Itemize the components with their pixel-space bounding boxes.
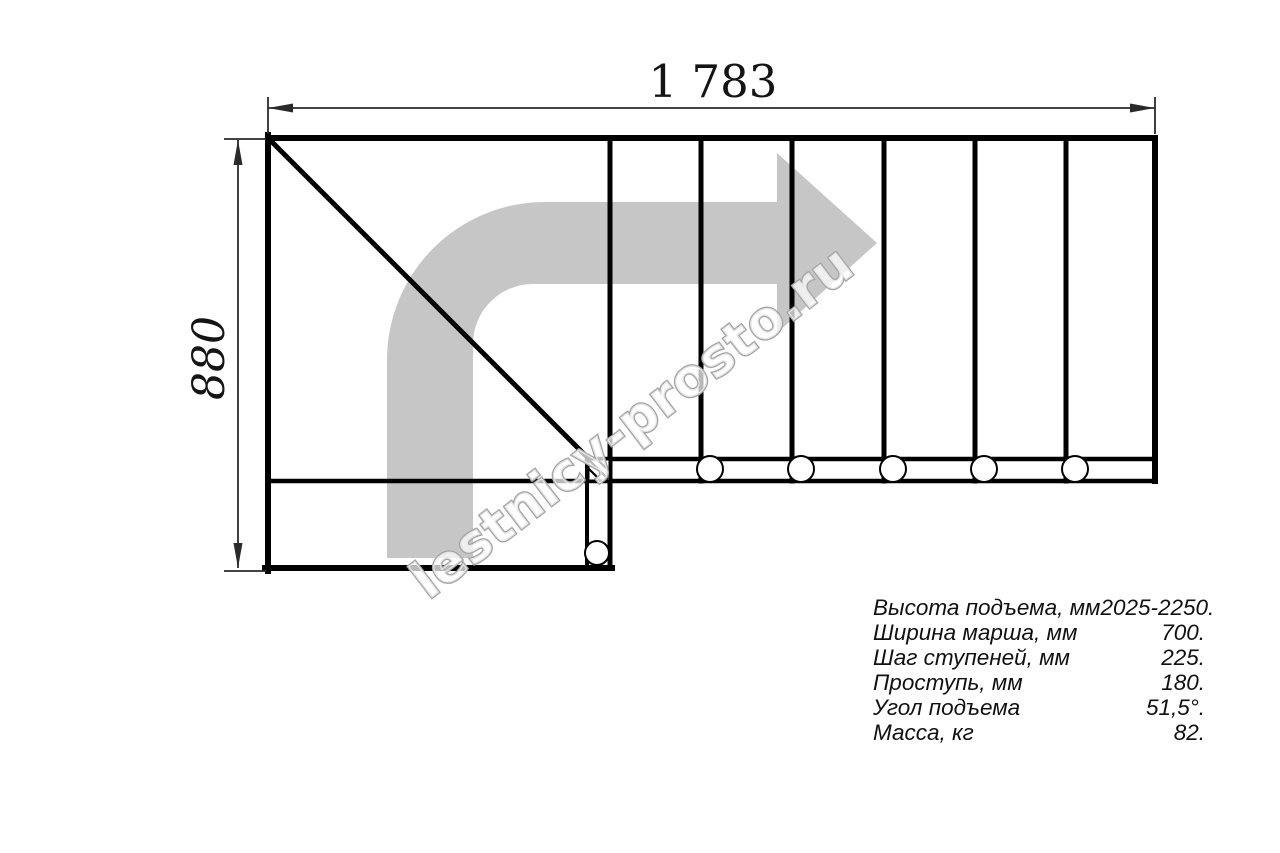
spec-row-flight-width: Ширина марша, мм 700. [873,620,1205,645]
spec-row-climb-angle: Угол подъема 51,5°. [873,695,1205,720]
spec-row-height-rise: Высота подъема, мм 2025-2250. [873,595,1205,620]
spec-row-step-pitch: Шаг ступеней, мм 225. [873,645,1205,670]
post-circle [880,456,906,482]
width-dimension-label: 1 783 [649,55,778,108]
width-dimension: 1 783 [268,55,1155,134]
spec-value: 225. [1161,645,1205,670]
post-circle [697,456,723,482]
post-circle [971,456,997,482]
turn-right-arrow-icon [387,153,877,558]
height-dimension-label: 880 [184,316,235,400]
dim-arrow-up-icon [234,140,243,165]
dim-arrow-left-icon [268,104,293,113]
staircase-plan-page: 1 783 880 lestnicy-prosto.ru Высота подъ… [0,0,1280,853]
spec-value: 2025-2250. [1100,595,1214,620]
spec-label: Масса, кг [873,720,974,745]
height-dimension: 880 [184,139,266,571]
spec-label: Проступь, мм [873,670,1023,695]
spec-label: Ширина марша, мм [873,620,1077,645]
spec-value: 82. [1174,720,1205,745]
spec-value: 700. [1161,620,1205,645]
spec-row-tread: Проступь, мм 180. [873,670,1205,695]
spec-table: Высота подъема, мм 2025-2250. Ширина мар… [873,595,1205,745]
dim-arrow-right-icon [1130,104,1155,113]
spec-row-mass: Масса, кг 82. [873,720,1205,745]
post-circle-landing [585,541,609,565]
dim-arrow-down-icon [234,543,243,568]
spec-label: Шаг ступеней, мм [873,645,1070,670]
post-circles [585,456,1088,565]
spec-label: Угол подъема [873,695,1020,720]
post-circle [788,456,814,482]
spec-label: Высота подъема, мм [873,595,1100,620]
spec-value: 51,5°. [1146,695,1205,720]
post-circle [1062,456,1088,482]
spec-value: 180. [1161,670,1205,695]
